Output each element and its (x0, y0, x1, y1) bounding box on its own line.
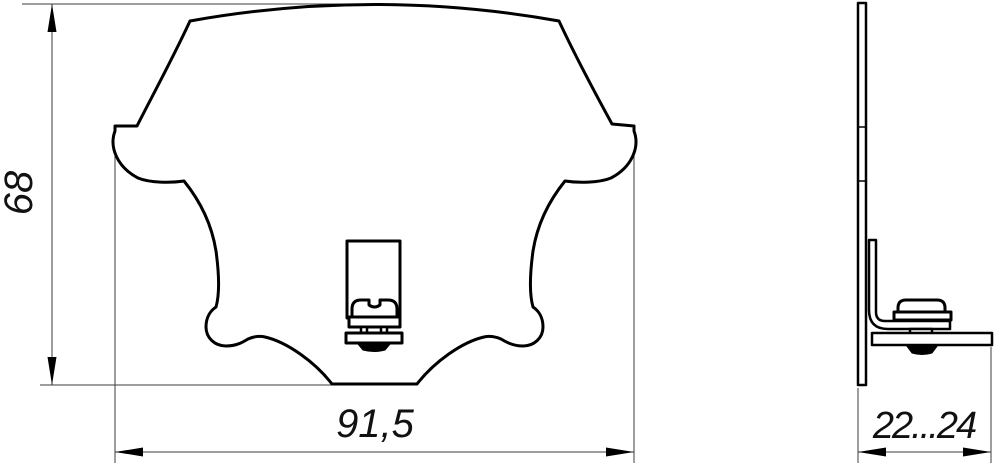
width-dimension-label: 91,5 (336, 402, 415, 446)
clamp-plate-side (872, 333, 992, 345)
side-view (858, 3, 992, 385)
arrow-up-icon (48, 4, 57, 32)
washer-front (349, 317, 400, 327)
height-dimension-label: 68 (0, 170, 41, 215)
washer-side (894, 312, 951, 320)
arrow-left-icon (115, 448, 143, 457)
depth-dimension-label: 22...24 (872, 405, 976, 447)
plate-edge (858, 3, 866, 385)
technical-drawing: 91,5 68 22...24 (0, 0, 998, 467)
front-view (113, 5, 636, 385)
arrow-right-icon (606, 448, 634, 457)
arrow-down-icon (48, 357, 57, 385)
nut-front (358, 344, 390, 352)
clamp-plate-front (346, 333, 402, 343)
clamp-detail-front (346, 241, 402, 352)
drawing-canvas: 91,5 68 22...24 (0, 0, 998, 467)
nut-side (906, 345, 938, 355)
arrow-right-icon (963, 448, 991, 457)
arrow-left-icon (858, 448, 886, 457)
